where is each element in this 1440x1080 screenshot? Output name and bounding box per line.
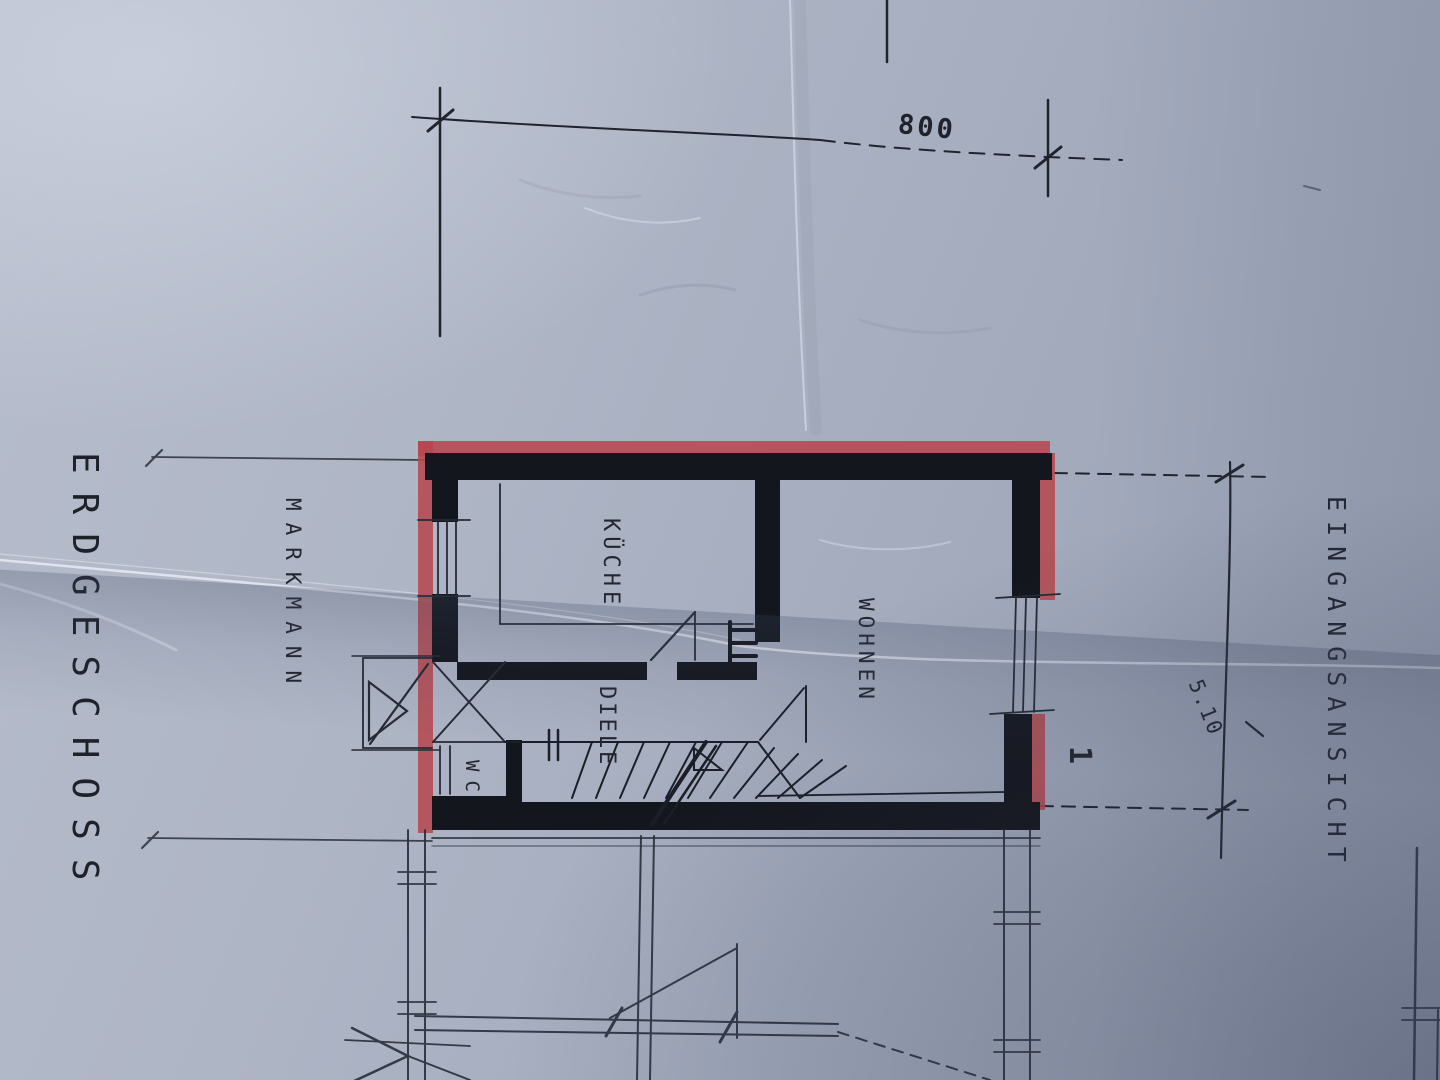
paper-crease-lines: [0, 0, 1440, 668]
view-title: EINGANGSANSICHT: [1322, 496, 1351, 872]
outside-step-lines: [432, 838, 1040, 846]
floor-plan-photo: ERDGESCHOSS MARKMANN KÜCHE WOHNEN DIELE …: [0, 0, 1440, 1080]
radiator-symbol: [730, 622, 756, 668]
room-label-wohnen: WOHNEN: [854, 598, 878, 704]
owner-name-label: MARKMANN: [281, 498, 305, 695]
stair-number-label: 1: [1062, 746, 1097, 764]
floor-plan-drawing: [0, 0, 1440, 1080]
dimension-800-label: 800: [897, 109, 958, 146]
top-dimension-lines: [412, 0, 1320, 336]
lower-extension-drawing: [345, 830, 1440, 1080]
right-dimension-line: [1040, 462, 1270, 858]
room-label-wc: WC: [461, 760, 483, 801]
room-label-kueche: KÜCHE: [598, 518, 623, 609]
floor-title: ERDGESCHOSS: [64, 452, 105, 899]
kitchen-interior-lines: [500, 484, 753, 660]
room-label-diele: DIELE: [594, 686, 619, 767]
